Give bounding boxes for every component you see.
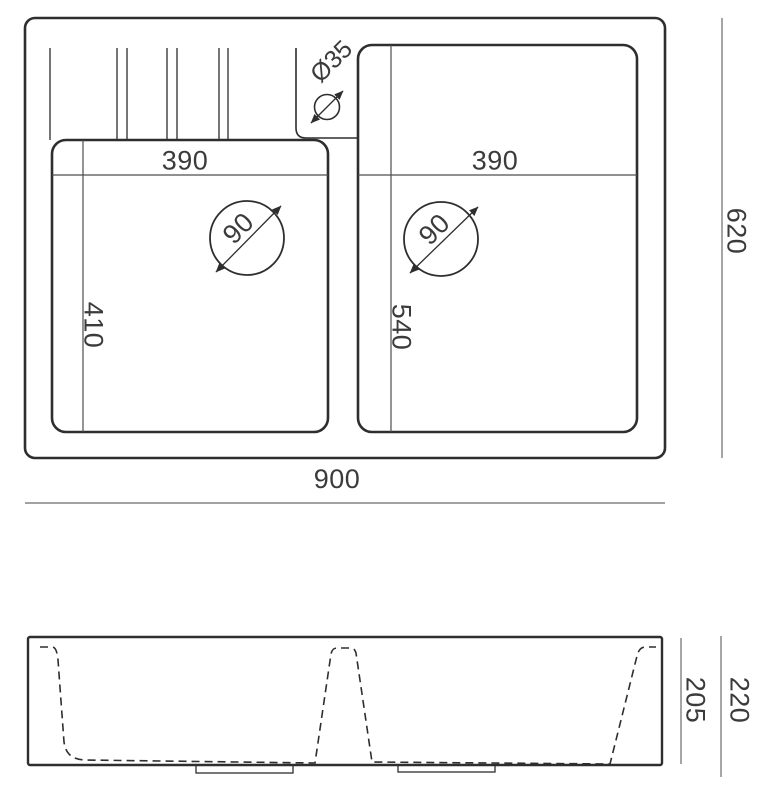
overall-height-label: 220	[725, 677, 755, 724]
sink-outer-outline	[25, 18, 665, 458]
overall-dimension-lines	[25, 18, 722, 503]
side-view	[28, 636, 721, 777]
bowl-dimension-lines	[52, 45, 637, 432]
left-drain-diameter-label: 90	[217, 207, 260, 250]
left-bowl-outline	[52, 140, 328, 432]
sink-drawing-canvas: 390 390 410 540 90 90 Ø35 900 620 205 22…	[0, 0, 758, 800]
left-bowl-depth-label: 410	[79, 302, 109, 349]
faucet-hole	[311, 91, 343, 123]
right-bowl-width-label: 390	[472, 145, 519, 175]
sink-technical-drawing-page: 390 390 410 540 90 90 Ø35 900 620 205 22…	[0, 0, 758, 800]
faucet-hole-diameter-label: Ø35	[305, 35, 358, 88]
left-drain-fitting	[196, 765, 293, 773]
overall-depth-label: 620	[722, 208, 752, 255]
right-drain-diameter-label: 90	[413, 208, 456, 251]
left-bowl-width-label: 390	[162, 145, 209, 175]
right-bowl-outline	[358, 45, 637, 432]
body-height-label: 205	[681, 677, 711, 724]
overall-width-label: 900	[314, 464, 361, 494]
side-body-outline	[28, 637, 662, 765]
drainboard-grooves	[50, 48, 228, 140]
hidden-bowl-profile	[40, 647, 656, 764]
faucet-hole-diameter-arrow	[311, 91, 343, 123]
right-bowl-depth-label: 540	[387, 304, 417, 351]
top-view	[25, 18, 722, 503]
